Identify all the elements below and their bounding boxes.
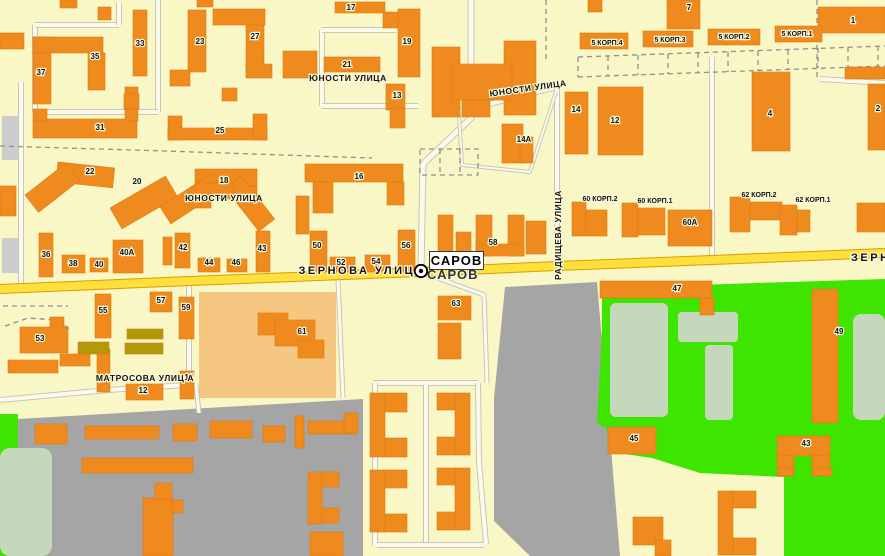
building: [733, 538, 756, 555]
building: [455, 393, 470, 455]
building: [370, 393, 385, 457]
building: [622, 203, 638, 237]
building-number-label: 13: [393, 91, 402, 100]
building-number-label: 55: [99, 306, 108, 315]
building: [588, 0, 602, 12]
building: [143, 498, 173, 556]
building-number-label: 60А: [683, 218, 698, 227]
building: [600, 281, 712, 298]
building: [298, 340, 324, 358]
building: [95, 294, 111, 338]
building: [213, 9, 265, 25]
building-number-label: 18: [220, 176, 229, 185]
street-name-label: ЮНОСТИ УЛИЦА: [309, 73, 387, 83]
building: [0, 33, 24, 49]
building: [33, 37, 103, 53]
building-number-label: 40А: [120, 248, 135, 257]
building: [60, 0, 77, 8]
building-number-label: 2: [876, 104, 881, 113]
building-number-label: 40: [95, 260, 104, 269]
building: [155, 483, 172, 499]
building: [730, 197, 750, 232]
building: [437, 437, 455, 455]
map-canvas[interactable]: 373533232731252220181617192113715 КОРП.4…: [0, 0, 885, 556]
building-number-label: 31: [96, 123, 105, 132]
building-number-label: 57: [157, 296, 166, 305]
building-number-label: 16: [355, 172, 364, 181]
sports-court-2: [678, 312, 738, 342]
building-number-label: 49: [835, 327, 844, 336]
building: [868, 84, 885, 150]
building-number-label: 5 КОРП.3: [654, 37, 685, 44]
street-name-label: МАТРОСОВА УЛИЦ А: [96, 373, 194, 383]
building-number-label: 19: [403, 37, 412, 46]
building: [797, 210, 810, 232]
building: [33, 109, 47, 121]
building-number-label: 62 КОРП.1: [796, 197, 831, 204]
building: [263, 426, 285, 442]
building: [812, 289, 838, 423]
building: [296, 196, 309, 234]
building: [387, 182, 404, 205]
building: [127, 329, 163, 339]
parking-top-left: [2, 116, 19, 160]
building: [310, 532, 343, 556]
building: [526, 221, 546, 254]
building: [210, 421, 252, 438]
building: [385, 393, 407, 412]
building-number-label: 62 КОРП.2: [742, 192, 777, 199]
building-number-label: 60 КОРП.2: [583, 196, 618, 203]
building-number-label: 47: [673, 284, 682, 293]
building: [322, 472, 339, 487]
building: [812, 468, 832, 476]
building: [750, 202, 782, 220]
building: [667, 0, 700, 29]
building-number-label: 5 КОРП.4: [591, 40, 622, 47]
city-marker-dot: [419, 269, 423, 273]
building: [0, 186, 16, 216]
main-street-label: ЗЕРНОВА: [851, 252, 885, 264]
building-number-label: 50: [313, 241, 322, 250]
building-number-label: 23: [196, 37, 205, 46]
building-number-label: 38: [69, 259, 78, 268]
building: [733, 491, 756, 508]
building-number-label: 42: [179, 243, 188, 252]
building: [335, 2, 385, 13]
building: [638, 208, 665, 235]
building: [598, 87, 643, 155]
building-number-label: 12: [611, 116, 620, 125]
building: [253, 114, 267, 140]
building-number-label: 14А: [517, 135, 532, 144]
building: [172, 500, 183, 513]
building: [700, 298, 714, 315]
sports-court-3: [705, 345, 733, 420]
street-name-label: РАДИЩЕВА УЛИЦА: [553, 190, 563, 280]
building: [125, 343, 163, 354]
building: [655, 540, 671, 556]
building: [85, 426, 159, 439]
building-number-label: 20: [133, 177, 142, 186]
building: [33, 119, 137, 138]
building-number-label: 63: [452, 299, 461, 308]
building: [222, 88, 237, 101]
building-number-label: 33: [136, 39, 145, 48]
building-number-label: 45: [630, 434, 639, 443]
street-name-label: ЮНОСТИ УЛИЦА: [185, 193, 263, 203]
building-number-label: 5 КОРП.1: [781, 31, 812, 38]
building-number-label: 1: [851, 16, 856, 25]
building: [438, 323, 461, 359]
building: [780, 205, 797, 235]
city-marker-label[interactable]: САРОВ: [429, 251, 484, 270]
building: [437, 468, 455, 485]
building: [586, 210, 607, 236]
building: [60, 354, 90, 366]
parking-mid-left: [2, 238, 19, 273]
building: [50, 317, 64, 328]
building: [78, 342, 109, 354]
building-number-label: 58: [489, 238, 498, 247]
building: [370, 470, 385, 532]
building: [462, 100, 490, 117]
building-number-label: 7: [687, 3, 692, 12]
building: [779, 468, 793, 476]
building-number-label: 25: [216, 126, 225, 135]
building-number-label: 27: [251, 32, 260, 41]
building: [295, 416, 304, 448]
building-number-label: 60 КОРП.1: [638, 198, 673, 205]
building: [313, 182, 333, 213]
sports-court-1: [610, 303, 668, 417]
building-number-label: 21: [343, 60, 352, 69]
building-number-label: 44: [205, 258, 214, 267]
building: [246, 64, 272, 78]
building: [385, 438, 407, 457]
building-number-label: 56: [402, 241, 411, 250]
building: [572, 202, 586, 236]
building-number-label: 12: [139, 386, 148, 395]
building-number-label: 4: [768, 109, 773, 118]
building: [163, 237, 172, 265]
building: [857, 203, 885, 232]
building-number-label: 59: [182, 303, 191, 312]
building: [718, 491, 733, 555]
building-number-label: 5 КОРП.2: [718, 34, 749, 41]
building: [322, 508, 339, 523]
building: [324, 57, 380, 72]
building: [197, 0, 213, 7]
building-number-label: 61: [298, 327, 307, 336]
building: [82, 458, 193, 473]
sports-court-4: [853, 314, 885, 420]
building: [437, 393, 455, 410]
building: [565, 92, 588, 154]
building: [173, 424, 197, 441]
building-number-label: 36: [42, 250, 51, 259]
building-number-label: 17: [347, 3, 356, 12]
building: [455, 468, 470, 530]
building-number-label: 53: [36, 334, 45, 343]
building: [98, 7, 111, 20]
building: [437, 512, 455, 530]
building: [308, 472, 322, 524]
building: [170, 70, 190, 86]
building: [845, 67, 885, 79]
map-viewport[interactable]: 373533232731252220181617192113715 КОРП.4…: [0, 0, 885, 556]
building-number-label: 14: [572, 105, 581, 114]
building-number-label: 35: [91, 52, 100, 61]
building-number-label: 46: [232, 258, 241, 267]
building: [668, 210, 712, 246]
building-number-label: 43: [802, 439, 811, 448]
building: [390, 108, 405, 128]
building-number-label: 37: [37, 68, 46, 77]
building: [385, 470, 407, 488]
building: [97, 349, 110, 392]
building: [8, 360, 58, 373]
building: [344, 413, 358, 433]
building: [124, 94, 139, 109]
building: [35, 424, 67, 444]
building-number-label: 43: [258, 244, 267, 253]
sports-court-left: [0, 448, 52, 556]
building-number-label: 22: [86, 167, 95, 176]
building: [385, 514, 407, 532]
main-street-label: ЗЕРНОВА УЛИЦА: [299, 265, 426, 277]
